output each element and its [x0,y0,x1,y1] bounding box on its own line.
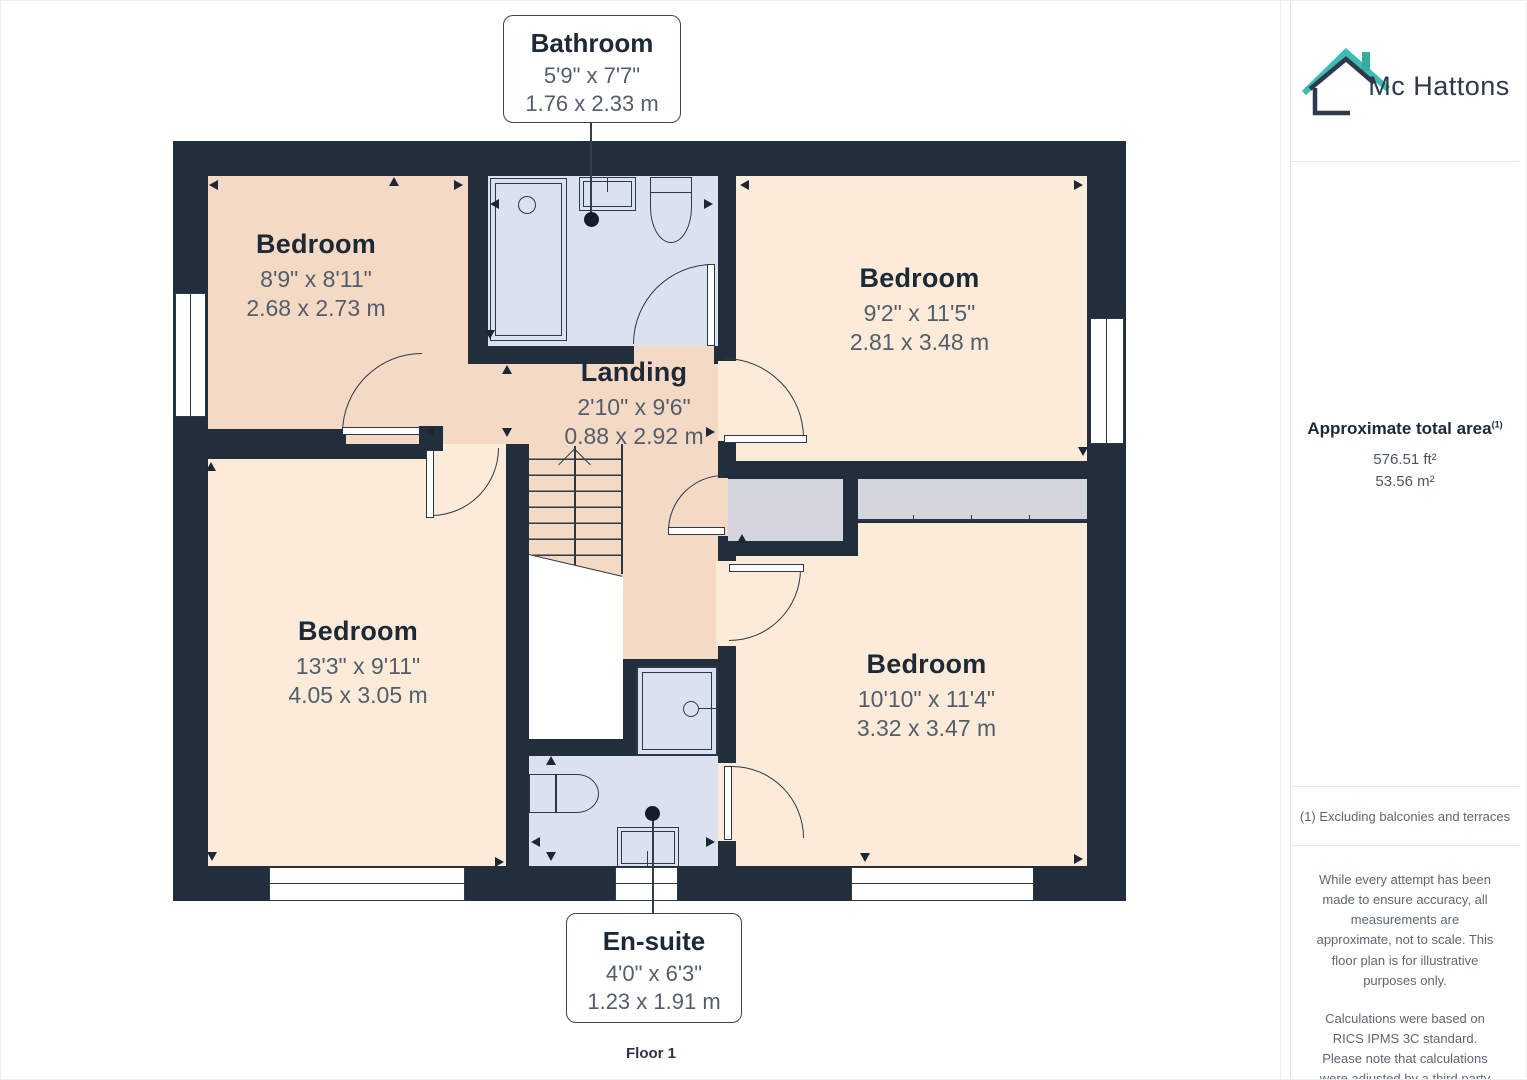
callout-name: Bathroom [504,28,680,59]
room-dimensions: 9'2" x 11'5"2.81 x 3.48 m [744,299,1095,357]
dimension-arrow-icon [206,462,216,471]
dimension-arrow-icon [389,177,399,186]
dimension-arrow-icon [531,837,540,847]
room-name: Bedroom [744,263,1095,294]
total-area-heading-text: Approximate total area [1307,419,1491,438]
wardrobe-tick [913,515,914,523]
panel-divider [1280,1,1281,1080]
info-sidebar: Mc Hattons Approximate total area(1) 576… [1290,1,1519,1080]
callout-dim-metric: 1.76 x 2.33 m [525,91,658,116]
footnote-text: (1) Excluding balconies and terraces [1300,809,1510,824]
window-bottom-left-mullion [270,883,464,884]
wardrobe-slider-line [858,519,1087,521]
floorplan-canvas: Bedroom 8'9" x 8'11"2.68 x 2.73 m Bedroo… [1,1,1280,1080]
room-label-bedroom-top-left: Bedroom 8'9" x 8'11"2.68 x 2.73 m [186,229,446,323]
floor-label: Floor 1 [561,1045,741,1062]
door-leaf-bathroom [707,264,715,346]
stair-void [529,554,623,739]
sink-tap-line [607,177,608,192]
door-leaf-ensuite [724,766,732,840]
wardrobe-tick [971,515,972,523]
area-sqm: 53.56 m² [1375,473,1434,490]
shower-handle-line [698,708,718,709]
total-area-heading: Approximate total area(1) [1291,419,1519,439]
dimension-arrow-icon [490,199,499,209]
window-right-mullion [1106,319,1107,443]
brand-name: Mc Hattons [1368,71,1510,102]
total-area-values: 576.51 ft²53.56 m² [1291,449,1519,493]
sink-tap-line-ensuite [647,851,648,868]
room-dim-imperial: 10'10" x 11'4" [858,686,995,712]
disclaimer-paragraph-1: While every attempt has been made to ens… [1313,870,1497,991]
callout-leader-bathroom [590,119,592,219]
room-dim-metric: 0.88 x 2.92 m [564,423,703,449]
window-ensuite-mullion [616,883,677,884]
dimension-arrow-icon [1078,447,1088,456]
callout-dimensions: 5'9" x 7'7"1.76 x 2.33 m [504,62,680,118]
callout-leader-ensuite [652,819,654,917]
dimension-arrow-icon [502,365,512,374]
disclaimer-section: While every attempt has been made to ens… [1291,846,1519,1080]
room-label-bedroom-top-right: Bedroom 9'2" x 11'5"2.81 x 3.48 m [744,263,1095,357]
dimension-arrow-icon [740,180,749,190]
wardrobe-fill [858,479,1087,519]
wardrobe-tick [1029,515,1030,523]
room-dim-imperial: 13'3" x 9'11" [296,653,420,679]
dimension-arrow-icon [706,837,715,847]
room-dim-imperial: 2'10" x 9'6" [577,394,690,420]
camera-dot-ensuite [645,806,660,821]
callout-dim-imperial: 4'0" x 6'3" [606,961,702,986]
dimension-arrow-icon [737,534,747,543]
room-name: Bedroom [751,649,1102,680]
room-dimensions: 2'10" x 9'6"0.88 x 2.92 m [514,393,754,451]
room-dimensions: 8'9" x 8'11"2.68 x 2.73 m [186,265,446,323]
dimension-arrow-icon [502,428,512,437]
floorplan-page: Bedroom 8'9" x 8'11"2.68 x 2.73 m Bedroo… [0,0,1527,1080]
dimension-arrow-icon [209,180,218,190]
dimension-arrow-icon [704,199,713,209]
footnote-section: (1) Excluding balconies and terraces [1291,786,1519,846]
bath-drain-icon [518,196,536,214]
callout-ensuite: En-suite 4'0" x 6'3"1.23 x 1.91 m [566,913,742,1023]
stair-stringer-line [621,444,623,574]
dimension-arrow-icon [454,180,463,190]
shower-cubicle-inner [642,672,712,750]
dimension-arrow-icon [485,330,495,339]
disclaimer-paragraph-2: Calculations were based on RICS IPMS 3C … [1313,1009,1497,1080]
window-bottom-right-mullion [852,883,1033,884]
room-name: Bedroom [186,229,446,260]
room-label-bedroom-bottom-right: Bedroom 10'10" x 11'4"3.32 x 3.47 m [751,649,1102,743]
shower-handle-icon [683,701,699,717]
room-dim-imperial: 8'9" x 8'11" [260,266,372,292]
dimension-arrow-icon [207,852,217,861]
callout-dim-imperial: 5'9" x 7'7" [544,63,640,88]
room-dimensions: 13'3" x 9'11"4.05 x 3.05 m [228,652,488,710]
area-sqft: 576.51 ft² [1373,451,1436,468]
callout-name: En-suite [567,926,741,957]
door-leaf-bedroom-bottom-left [426,450,434,518]
room-dim-imperial: 9'2" x 11'5" [864,300,976,326]
dimension-arrow-icon [425,427,434,437]
dimension-arrow-icon [1074,180,1083,190]
logo-section: Mc Hattons [1291,1,1519,162]
dimension-arrow-icon [1074,854,1083,864]
dimension-arrow-icon [546,756,556,765]
total-area-section: Approximate total area(1) 576.51 ft²53.5… [1291,419,1519,493]
toilet-bowl-ensuite [555,774,599,813]
room-label-landing: Landing 2'10" x 9'6"0.88 x 2.92 m [514,357,754,451]
toilet-tank-ensuite [529,774,557,813]
dimension-arrow-icon [860,853,870,862]
footnote-marker: (1) [1492,419,1503,429]
door-leaf-closet [668,527,725,535]
callout-dimensions: 4'0" x 6'3"1.23 x 1.91 m [567,960,741,1016]
room-dim-metric: 3.32 x 3.47 m [857,715,996,741]
room-dimensions: 10'10" x 11'4"3.32 x 3.47 m [751,685,1102,743]
brand-logo: Mc Hattons [1291,39,1519,121]
callout-dim-metric: 1.23 x 1.91 m [587,989,720,1014]
dimension-arrow-icon [546,852,556,861]
room-label-bedroom-bottom-left: Bedroom 13'3" x 9'11"4.05 x 3.05 m [228,616,488,710]
room-dim-metric: 2.81 x 3.48 m [850,329,989,355]
callout-bathroom: Bathroom 5'9" x 7'7"1.76 x 2.33 m [503,15,681,123]
toilet-cistern-line [651,192,691,193]
door-leaf-bedroom-top-left [342,427,420,435]
door-leaf-bedroom-bottom-right [729,564,804,572]
closet-fill [728,479,843,541]
dimension-arrow-icon [495,857,504,867]
room-name: Landing [514,357,754,388]
room-dim-metric: 2.68 x 2.73 m [246,295,385,321]
room-name: Bedroom [228,616,488,647]
camera-dot-bathroom [584,212,599,227]
room-dim-metric: 4.05 x 3.05 m [288,682,427,708]
